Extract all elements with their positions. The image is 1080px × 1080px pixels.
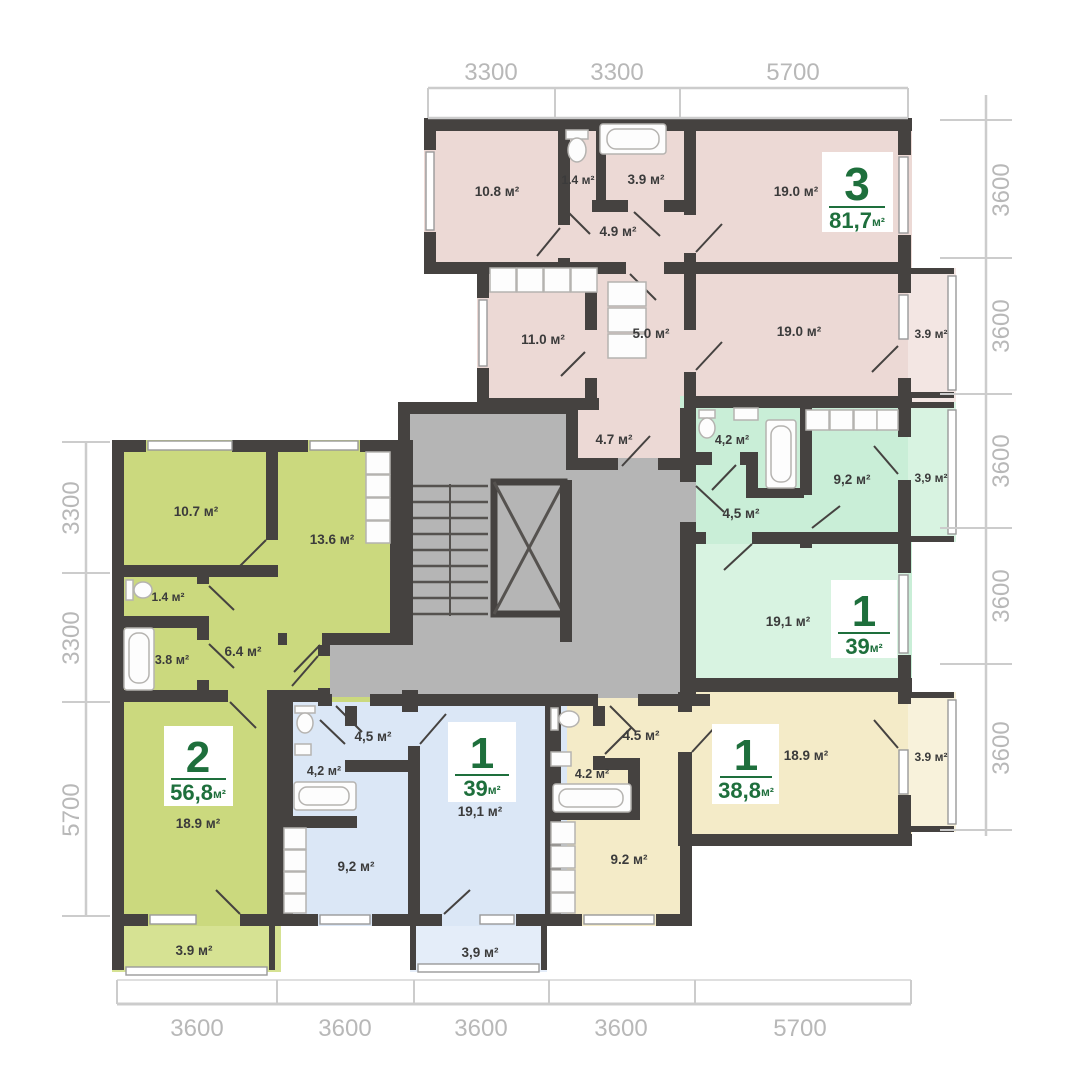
- apartment-badge-2[interactable]: 2 56,8м²: [164, 726, 233, 806]
- kitchen-counter: [490, 268, 516, 292]
- toilet: [295, 706, 315, 713]
- dim-label: 3300: [58, 481, 85, 534]
- room-area-label: 1.4 м²: [562, 173, 595, 187]
- dim-label: 3600: [454, 1015, 507, 1042]
- dim-label: 3300: [590, 59, 643, 86]
- room-area-label: 19.0 м²: [774, 184, 819, 199]
- room-area-label: 4.9 м²: [600, 224, 638, 239]
- apartment-badge-1-mint[interactable]: 1 39м²: [831, 580, 897, 659]
- room-area-label: 1.4 м²: [152, 590, 185, 604]
- closet: [608, 282, 646, 306]
- room-area-label: 3,9 м²: [462, 945, 500, 960]
- room-area-label: 18.9 м²: [176, 816, 221, 831]
- dimension-bottom: 3600 3600 3600 3600 5700: [117, 980, 911, 1042]
- room-area-label: 19,1 м²: [766, 614, 811, 629]
- sink: [734, 408, 758, 420]
- kitchen-counter: [551, 822, 575, 844]
- toilet: [126, 580, 133, 600]
- room-area-label: 5.0 м²: [633, 326, 671, 341]
- room-area-label: 3.9 м²: [176, 943, 214, 958]
- sink: [295, 744, 311, 755]
- dim-label: 3600: [988, 569, 1015, 622]
- room-area-label: 3,9 м²: [915, 471, 948, 485]
- dim-label: 3600: [988, 434, 1015, 487]
- badge-number: 1: [470, 729, 494, 778]
- dim-label: 3600: [594, 1015, 647, 1042]
- dimension-top: 3300 3300 5700: [428, 59, 908, 118]
- room-area-label: 4,5 м²: [723, 506, 761, 521]
- apartment-badge-1-blue[interactable]: 1 39м²: [448, 722, 516, 802]
- dim-label: 3600: [988, 721, 1015, 774]
- toilet: [551, 708, 558, 730]
- kitchen-counter: [284, 828, 306, 849]
- dim-label: 5700: [766, 59, 819, 86]
- room-area-label: 4.7 м²: [596, 432, 634, 447]
- dim-label: 5700: [58, 783, 85, 836]
- room-area-label: 9.2 м²: [611, 852, 649, 867]
- room-area-label: 4.5 м²: [623, 728, 661, 743]
- dim-label: 3600: [318, 1015, 371, 1042]
- room-area-label: 3.8 м²: [155, 653, 189, 667]
- room-area-label: 10.7 м²: [174, 504, 219, 519]
- room-area-label: 13.6 м²: [310, 532, 355, 547]
- room-area-label: 19,1 м²: [458, 804, 503, 819]
- dim-label: 3300: [58, 611, 85, 664]
- room-area-label: 10.8 м²: [475, 184, 520, 199]
- room-area-label: 4.2 м²: [575, 767, 609, 781]
- floor-plan: 10.8 м² 1.4 м² 3.9 м² 4.9 м² 19.0 м² 11.…: [0, 0, 1080, 1080]
- badge-number: 1: [852, 587, 876, 636]
- room-area-label: 3.9 м²: [628, 172, 666, 187]
- dim-label: 3600: [988, 299, 1015, 352]
- room-area-label: 4,5 м²: [355, 729, 393, 744]
- room-area-label: 4,2 м²: [307, 764, 341, 778]
- room-area-label: 9,2 м²: [338, 859, 376, 874]
- dim-label: 3600: [988, 163, 1015, 216]
- room-area-label: 9,2 м²: [834, 472, 872, 487]
- dim-label: 3300: [464, 59, 517, 86]
- apartment-badge-1-yellow[interactable]: 1 38,8м²: [712, 724, 779, 804]
- sink: [551, 752, 571, 766]
- kitchen-counter: [366, 452, 390, 474]
- badge-number: 3: [844, 158, 870, 210]
- dimension-left: 3300 3300 5700: [58, 442, 110, 916]
- dim-label: 3600: [170, 1015, 223, 1042]
- kitchen-counter: [806, 410, 829, 430]
- room-area-label: 11.0 м²: [521, 332, 565, 347]
- badge-number: 1: [734, 731, 758, 780]
- room-area-label: 3.9 м²: [915, 327, 948, 341]
- room-area-label: 6.4 м²: [225, 644, 263, 659]
- room-area-label: 4,2 м²: [715, 433, 749, 447]
- floor-plan-page: 10.8 м² 1.4 м² 3.9 м² 4.9 м² 19.0 м² 11.…: [0, 0, 1080, 1080]
- room-area-label: 19.0 м²: [777, 324, 822, 339]
- room-area-label: 3.9 м²: [915, 750, 948, 764]
- room-area-label: 18.9 м²: [784, 748, 829, 763]
- apartment-badge-3[interactable]: 3 81,7м²: [822, 152, 893, 233]
- toilet: [699, 410, 715, 418]
- dim-label: 5700: [773, 1015, 826, 1042]
- badge-number: 2: [186, 733, 210, 782]
